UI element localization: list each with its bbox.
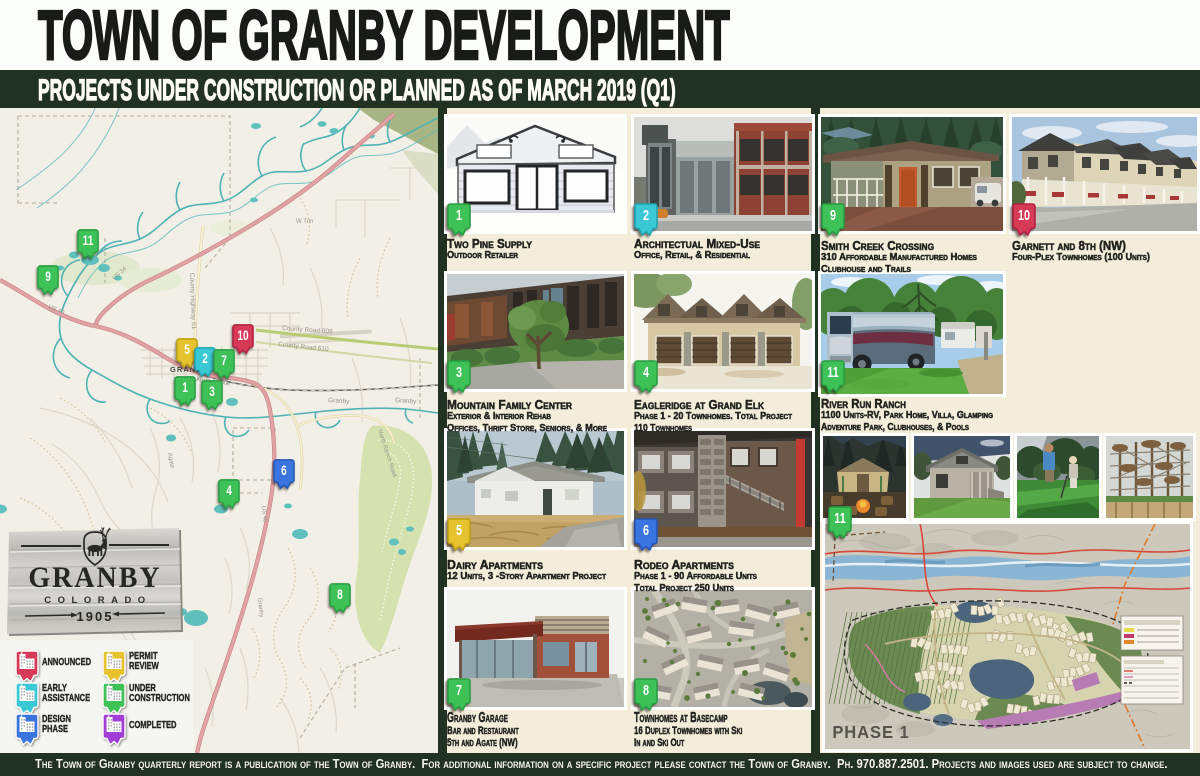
svg-text:COLORADO: COLORADO (44, 595, 151, 606)
svg-text:GRANBY: GRANBY (28, 561, 161, 594)
svg-text:1905: 1905 (77, 609, 114, 624)
svg-text:PHASE 1: PHASE 1 (832, 721, 909, 742)
svg-text:W Trin: W Trin (296, 219, 313, 225)
